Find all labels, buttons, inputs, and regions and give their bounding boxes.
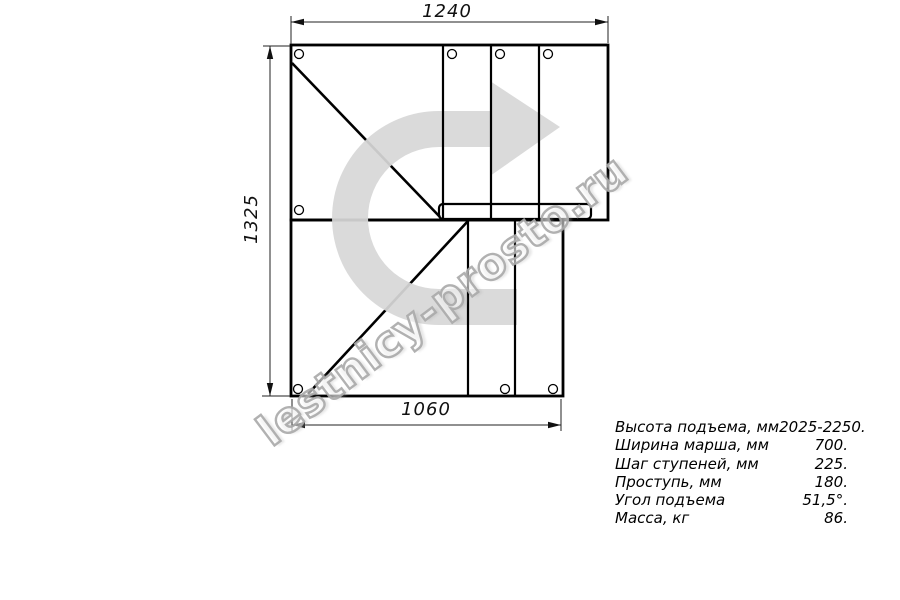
specs-table: Высота подъема, мм 2025-2250. Ширина мар… [615, 418, 848, 528]
mounting-hole [448, 50, 457, 59]
mounting-hole [295, 206, 304, 215]
spec-value: 2025-2250. [779, 418, 866, 436]
spec-row: Ширина марша, мм 700. [615, 436, 848, 454]
spec-row: Проступь, мм 180. [615, 473, 848, 491]
arrowhead-icon [548, 422, 561, 428]
spec-label: Высота подъема, мм [615, 418, 779, 436]
drawing-canvas: lestnicy-prosto.ru 1240 1325 1060 Высота… [0, 0, 900, 600]
spec-label: Ширина марша, мм [615, 436, 769, 454]
spec-value: 180. [815, 473, 848, 491]
spec-row: Угол подъема 51,5°. [615, 491, 848, 509]
mounting-hole [496, 50, 505, 59]
arrowhead-icon [291, 19, 304, 25]
dimension-value-bottom: 1060 [383, 401, 469, 419]
mounting-hole [544, 50, 553, 59]
spec-value: 700. [815, 436, 848, 454]
dimension-value-left: 1325 [243, 176, 261, 262]
dimension-value-top: 1240 [404, 3, 490, 21]
spec-row: Высота подъема, мм 2025-2250. [615, 418, 848, 436]
arrowhead-icon [267, 46, 273, 59]
spec-label: Проступь, мм [615, 473, 722, 491]
mounting-hole [295, 50, 304, 59]
spec-label: Шаг ступеней, мм [615, 455, 759, 473]
spec-row: Масса, кг 86. [615, 509, 848, 527]
mounting-hole [501, 385, 510, 394]
spec-value: 86. [824, 509, 848, 527]
spec-row: Шаг ступеней, мм 225. [615, 455, 848, 473]
spec-value: 51,5°. [802, 491, 848, 509]
spec-label: Масса, кг [615, 509, 689, 527]
spec-label: Угол подъема [615, 491, 725, 509]
spec-value: 225. [815, 455, 848, 473]
mounting-hole [549, 385, 558, 394]
arrowhead-icon [595, 19, 608, 25]
